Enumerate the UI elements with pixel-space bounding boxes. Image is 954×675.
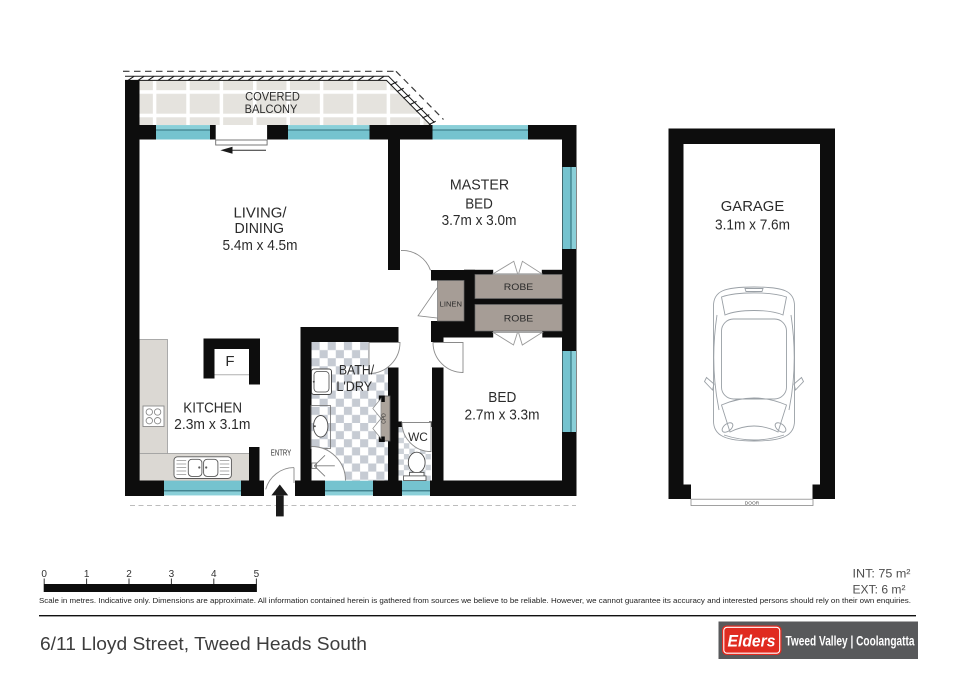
svg-text:COVERED: COVERED [245, 91, 300, 103]
svg-text:5.4m x 4.5m: 5.4m x 4.5m [223, 237, 298, 254]
svg-text:MASTER: MASTER [450, 177, 509, 194]
svg-text:CPD: CPD [382, 413, 388, 424]
svg-text:ROBE: ROBE [504, 313, 534, 324]
svg-text:Scale in metres. Indicative on: Scale in metres. Indicative only. Dimens… [39, 596, 911, 605]
svg-text:4: 4 [211, 569, 217, 580]
svg-text:GARAGE: GARAGE [721, 198, 785, 215]
svg-text:1: 1 [84, 569, 90, 580]
svg-text:0: 0 [41, 569, 47, 580]
svg-text:Tweed Valley | Coolangatta: Tweed Valley | Coolangatta [786, 634, 915, 649]
svg-text:2.3m x 3.1m: 2.3m x 3.1m [174, 416, 250, 433]
svg-text:2: 2 [126, 569, 132, 580]
svg-text:BED: BED [488, 389, 516, 406]
svg-text:BED: BED [465, 195, 493, 212]
svg-text:6/11 Lloyd Street, Tweed Heads: 6/11 Lloyd Street, Tweed Heads South [40, 634, 367, 654]
svg-text:3: 3 [169, 569, 175, 580]
svg-text:Elders: Elders [728, 633, 776, 651]
svg-text:WC: WC [408, 432, 428, 444]
svg-text:DINING: DINING [235, 220, 285, 237]
svg-text:L'DRY: L'DRY [336, 379, 372, 394]
svg-text:LINEN: LINEN [440, 299, 462, 308]
svg-text:3.1m x 7.6m: 3.1m x 7.6m [715, 217, 790, 234]
svg-text:BALCONY: BALCONY [245, 104, 298, 116]
svg-text:BATH/: BATH/ [339, 362, 375, 377]
svg-text:EXT: 6 m²: EXT: 6 m² [853, 583, 906, 597]
svg-text:KITCHEN: KITCHEN [183, 400, 242, 417]
svg-text:INT: 75 m²: INT: 75 m² [853, 567, 911, 581]
svg-text:F: F [225, 353, 234, 370]
svg-text:5: 5 [254, 569, 260, 580]
svg-text:DOOR: DOOR [745, 501, 760, 507]
svg-text:3.7m x 3.0m: 3.7m x 3.0m [442, 212, 517, 229]
svg-text:ROBE: ROBE [504, 282, 534, 293]
svg-text:ENTRY: ENTRY [271, 448, 292, 457]
svg-text:2.7m x 3.3m: 2.7m x 3.3m [465, 406, 540, 423]
